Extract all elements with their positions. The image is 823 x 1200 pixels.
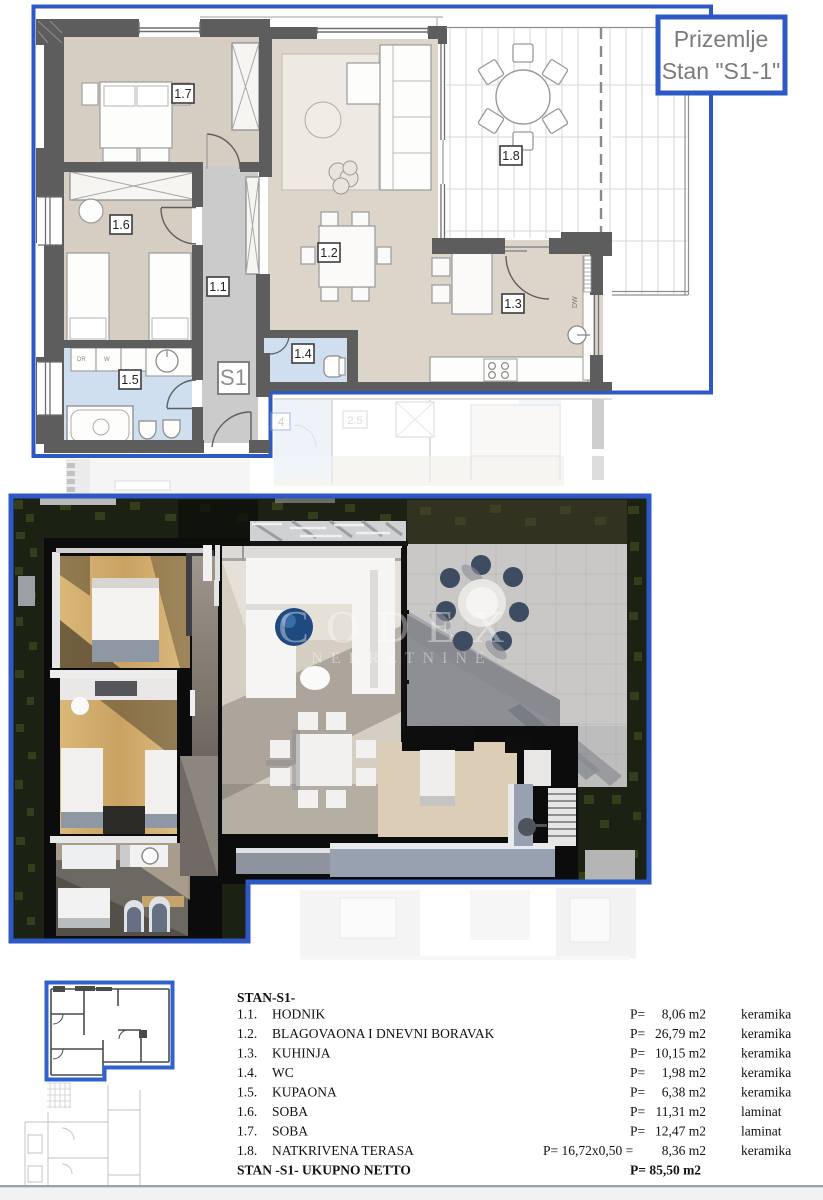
svg-text:10,15 m2: 10,15 m2 xyxy=(655,1046,706,1061)
svg-text:1.7.: 1.7. xyxy=(237,1124,257,1139)
svg-text:DR: DR xyxy=(77,357,86,363)
svg-text:6,38 m2: 6,38 m2 xyxy=(662,1085,706,1100)
svg-text:1.6.: 1.6. xyxy=(237,1104,257,1119)
svg-text:keramika: keramika xyxy=(741,1046,791,1061)
svg-text:1.3.: 1.3. xyxy=(237,1046,257,1061)
svg-text:P= 16,72x0,50 =: P= 16,72x0,50 = xyxy=(543,1143,633,1158)
svg-text:NATKRIVENA TERASA: NATKRIVENA TERASA xyxy=(272,1143,414,1158)
svg-text:P=: P= xyxy=(630,1124,645,1139)
svg-text:12,47 m2: 12,47 m2 xyxy=(655,1124,706,1139)
svg-text:DW: DW xyxy=(572,296,579,308)
svg-text:1.3: 1.3 xyxy=(504,297,521,311)
svg-text:Prizemlje: Prizemlje xyxy=(674,26,769,52)
svg-text:1.5.: 1.5. xyxy=(237,1085,257,1100)
svg-text:CODEX: CODEX xyxy=(278,601,521,652)
svg-text:keramika: keramika xyxy=(741,1143,791,1158)
svg-text:1.7: 1.7 xyxy=(174,87,191,101)
svg-text:S1: S1 xyxy=(220,365,247,390)
svg-text:WC: WC xyxy=(272,1065,294,1080)
svg-text:P=: P= xyxy=(630,1085,645,1100)
svg-text:P=: P= xyxy=(630,1007,645,1022)
svg-text:1.2.: 1.2. xyxy=(237,1026,257,1041)
svg-text:8,06 m2: 8,06 m2 xyxy=(662,1007,706,1022)
svg-text:1,98 m2: 1,98 m2 xyxy=(662,1065,706,1080)
svg-text:NEKRETNINE: NEKRETNINE xyxy=(311,650,492,667)
svg-text:HODNIK: HODNIK xyxy=(272,1007,325,1022)
svg-text:laminat: laminat xyxy=(741,1124,782,1139)
svg-text:keramika: keramika xyxy=(741,1085,791,1100)
svg-text:1.8: 1.8 xyxy=(502,149,519,163)
svg-text:BLAGOVAONA I DNEVNI BORAVAK: BLAGOVAONA I DNEVNI BORAVAK xyxy=(272,1026,495,1041)
svg-text:W: W xyxy=(104,357,110,363)
svg-text:P= 85,50 m2: P= 85,50 m2 xyxy=(630,1163,701,1178)
svg-text:1.6: 1.6 xyxy=(112,218,129,232)
svg-text:keramika: keramika xyxy=(741,1026,791,1041)
svg-text:SOBA: SOBA xyxy=(272,1124,308,1139)
svg-text:SOBA: SOBA xyxy=(272,1104,308,1119)
svg-text:1.4: 1.4 xyxy=(294,347,311,361)
svg-text:laminat: laminat xyxy=(741,1104,782,1119)
svg-text:11,31 m2: 11,31 m2 xyxy=(656,1104,707,1119)
svg-text:1.8.: 1.8. xyxy=(237,1143,257,1158)
svg-text:P=: P= xyxy=(630,1046,645,1061)
svg-text:P=: P= xyxy=(630,1065,645,1080)
svg-text:keramika: keramika xyxy=(741,1007,791,1022)
svg-text:1.1: 1.1 xyxy=(209,280,226,294)
svg-text:1.5: 1.5 xyxy=(121,373,138,387)
svg-text:Stan "S1-1": Stan "S1-1" xyxy=(662,58,781,84)
svg-text:4: 4 xyxy=(278,415,285,429)
svg-text:KUHINJA: KUHINJA xyxy=(272,1046,331,1061)
svg-text:2.5: 2.5 xyxy=(347,415,362,427)
svg-text:P=: P= xyxy=(630,1104,645,1119)
svg-text:26,79 m2: 26,79 m2 xyxy=(655,1026,706,1041)
svg-text:1.2: 1.2 xyxy=(320,246,337,260)
svg-text:KUPAONA: KUPAONA xyxy=(272,1085,337,1100)
svg-text:1.1.: 1.1. xyxy=(237,1007,257,1022)
svg-text:STAN -S1- UKUPNO NETTO: STAN -S1- UKUPNO NETTO xyxy=(237,1163,411,1178)
svg-text:STAN-S1-: STAN-S1- xyxy=(237,990,295,1005)
svg-text:keramika: keramika xyxy=(741,1065,791,1080)
svg-text:8,36 m2: 8,36 m2 xyxy=(662,1143,706,1158)
svg-text:P=: P= xyxy=(630,1026,645,1041)
svg-text:1.4.: 1.4. xyxy=(237,1065,257,1080)
